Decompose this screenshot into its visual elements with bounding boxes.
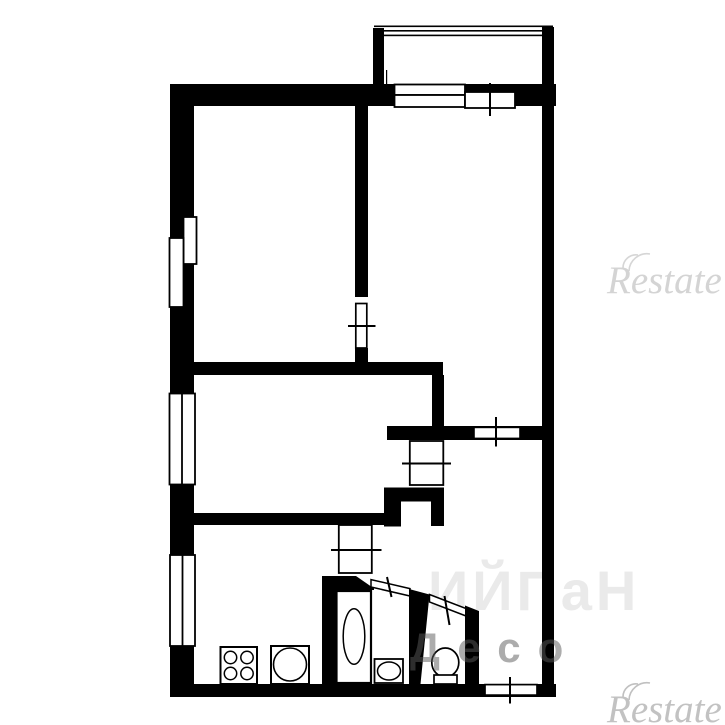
svg-text:Десо: Десо (410, 624, 580, 671)
svg-text:Restate: Restate (606, 259, 722, 302)
svg-text:Restate: Restate (606, 688, 722, 725)
